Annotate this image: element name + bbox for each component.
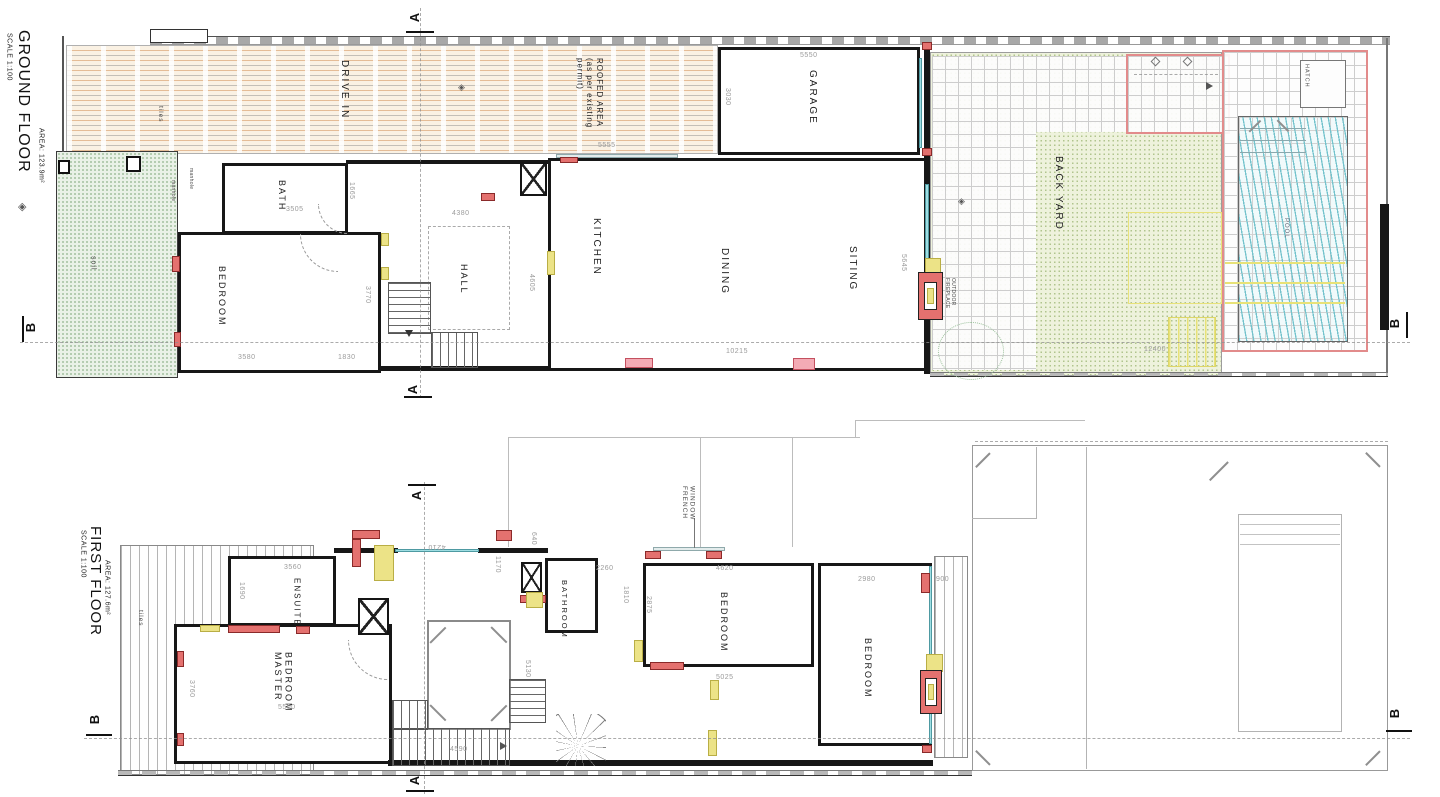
dim-bedroom2-span: 5025	[716, 674, 734, 681]
label-bedroom-mid: BEDROOM	[718, 592, 729, 653]
wall-patch-red	[481, 193, 495, 201]
label-kitchen: KITCHEN	[590, 218, 602, 276]
pool-roof-step	[1240, 544, 1340, 545]
fireplace-core	[927, 288, 934, 304]
label-drive-in: DRIVE IN	[338, 60, 350, 119]
room-bedroom-right	[818, 563, 932, 746]
dim-garage-width: 5550	[800, 52, 818, 59]
dim-bathroom-depth: 1810	[622, 586, 629, 604]
stair-side-ff	[509, 679, 546, 723]
label-garage: GARAGE	[806, 70, 818, 125]
gf-title: GROUND FLOOR	[14, 30, 33, 173]
front-boundary-wall	[150, 36, 1390, 45]
label-outdoor-fireplace: OUTDOOR FIREPLACE	[944, 278, 956, 309]
room-garage	[718, 47, 920, 155]
room-bathroom-ff	[545, 558, 598, 633]
north-diamond-icon: ◈	[18, 200, 26, 213]
stair-arrow-gf	[405, 330, 413, 337]
gate-box	[150, 29, 208, 43]
label-bedroom-gf: BEDROOM	[216, 266, 227, 327]
label-hatch: HATCH	[1303, 64, 1310, 88]
lintel-yellow	[200, 625, 220, 632]
dim-ensuite-width: 3560	[284, 564, 302, 571]
gf-area: AREA: 123.9m²	[36, 128, 44, 183]
roof-inner-line	[1086, 447, 1087, 769]
dim-garage-depth: 3030	[724, 88, 731, 106]
soil-manhole-box	[58, 160, 70, 174]
section-tick	[408, 484, 436, 486]
dim-landing-width: 4210	[428, 543, 446, 550]
wall-patch-red	[296, 626, 310, 634]
dim-bath-width: 3505	[286, 206, 304, 213]
section-tick	[404, 396, 432, 398]
room-living	[548, 158, 930, 371]
pool-steps	[1240, 152, 1306, 153]
lintel-yellow	[925, 258, 941, 273]
gf-scale: SCALE 1:100	[4, 33, 12, 81]
lift-shaft-ff	[358, 598, 389, 635]
hall-dashed-outline	[428, 226, 510, 330]
wall-patch-red	[560, 157, 578, 163]
wall-patch-red	[921, 573, 930, 593]
lintel-yellow	[526, 592, 543, 608]
french-window-leader	[694, 518, 695, 548]
dim-balcony-depth: 900	[936, 576, 949, 583]
section-tick	[86, 734, 112, 736]
yard-yellow-outline	[1128, 212, 1222, 304]
pool-roof-step	[1240, 534, 1340, 535]
party-wall-right	[1380, 204, 1389, 330]
label-bathroom-ff: BATHROOM	[560, 580, 569, 639]
section-marker-a: A	[407, 776, 422, 785]
dim-ensuite-depth: 1690	[238, 582, 245, 600]
pergola-deck	[1126, 54, 1230, 134]
lintel-yellow	[374, 545, 394, 581]
spiral-stair-circle	[556, 714, 606, 766]
label-pool: POOL	[1282, 218, 1289, 239]
roof-line	[855, 420, 856, 438]
section-marker-a: A	[405, 385, 420, 394]
ff-top-wall	[478, 548, 548, 553]
patio-tiles-left	[932, 56, 1036, 370]
stair-run2-ff	[392, 700, 428, 730]
wall-patch-pink	[625, 358, 653, 368]
label-roofed-area: ROOFED AREA (as per existing permit)	[575, 58, 604, 128]
stair-winder-gf	[431, 332, 478, 368]
roof-line	[855, 420, 1085, 421]
dim-master-depth: 3760	[188, 680, 195, 698]
lintel-yellow	[381, 233, 389, 246]
deck-arrow	[1206, 82, 1213, 90]
label-sitting: SITING	[846, 246, 858, 291]
dim-bath-depth: 1665	[348, 182, 355, 200]
wall-patch-red	[352, 530, 380, 539]
section-marker-a: A	[409, 491, 424, 500]
section-marker-b: B	[23, 323, 38, 332]
wall-patch-red	[706, 551, 722, 559]
wall-patch-pink	[793, 358, 815, 370]
pool-steps	[1240, 140, 1306, 141]
lintel-yellow	[708, 730, 717, 756]
pool-water	[1238, 116, 1348, 342]
section-tick	[1386, 730, 1412, 732]
yard-yellow-line	[1225, 262, 1345, 264]
soil-area	[56, 151, 178, 378]
rear-boundary-wall	[930, 372, 1388, 377]
wall-patch-red	[922, 148, 932, 156]
wall-patch-red	[174, 332, 181, 347]
soil-manhole-box	[126, 156, 141, 172]
dim-bedroom-width: 3580	[238, 354, 256, 361]
wall-patch-red	[172, 256, 180, 272]
wall-patch-red	[228, 625, 280, 633]
spiral-stair	[556, 714, 606, 766]
pool-roof-step	[1240, 524, 1340, 525]
patio-tiles-top	[1036, 56, 1128, 132]
tree-symbol	[938, 322, 1004, 380]
roof-line	[508, 437, 860, 438]
lintel-yellow	[634, 640, 643, 662]
lintel-yellow	[710, 680, 719, 700]
duct-shaft-ff	[521, 562, 542, 593]
roof-step-line	[1036, 447, 1037, 519]
dim-yard-width: 12400	[1144, 346, 1166, 353]
ff-area: AREA: 127.6m²	[102, 560, 110, 615]
label-manhole: manhole	[188, 168, 194, 189]
label-french-window: FRENCH WINDOW	[680, 486, 696, 521]
ff-bottom-boundary	[118, 770, 972, 776]
section-marker-b: B	[1387, 319, 1402, 328]
wall-patch-red	[922, 42, 932, 50]
lintel-yellow	[381, 267, 389, 280]
survey-diamond-icon: ◈	[458, 82, 465, 93]
roof-line	[792, 437, 793, 547]
dim-bathroom-width: 2260	[596, 565, 614, 572]
section-line-a-ff	[424, 482, 425, 794]
yard-yellow-line	[1225, 302, 1345, 304]
dim-living-width: 10215	[726, 348, 748, 355]
label-soil: soil	[88, 256, 96, 271]
wall-patch-red	[352, 539, 361, 567]
room-bedroom-gf	[178, 232, 381, 373]
stair-flight-gf	[388, 282, 431, 334]
section-line-a-gf	[420, 8, 421, 398]
survey-diamond-icon: ◈	[958, 196, 965, 207]
wall-patch-red	[496, 530, 512, 541]
label-bedroom-right: BEDROOM	[862, 638, 873, 699]
dim-landing-depth: 1170	[494, 556, 501, 573]
dim-master-width: 5500	[278, 704, 296, 711]
lift-shaft-gf	[520, 162, 547, 196]
section-tick	[1406, 312, 1408, 338]
pool-roof-outline	[1238, 514, 1342, 732]
section-tick	[22, 316, 24, 342]
stair-arrow-ff	[500, 742, 507, 750]
label-dining: DINING	[718, 248, 730, 295]
section-tick	[406, 31, 434, 33]
wall-patch-red	[650, 662, 684, 670]
wall-patch-red	[177, 733, 184, 746]
roof-line	[700, 437, 701, 547]
left-boundary-line	[62, 36, 64, 152]
wall-patch-red	[177, 651, 184, 667]
drive-in-paving	[66, 45, 718, 154]
section-tick	[406, 790, 434, 792]
dim-bedroom2-width: 4620	[716, 565, 734, 572]
ff-scale: SCALE 1:100	[78, 530, 86, 578]
section-marker-a: A	[407, 13, 422, 22]
label-ensuite: ENSUITE	[292, 578, 302, 627]
lintel-yellow	[547, 251, 555, 275]
dim-stair-depth: 5130	[524, 660, 531, 678]
dim-roofed-width: 5555	[598, 142, 616, 149]
dim-living-depth: 5645	[900, 254, 907, 272]
section-line-b-ff	[84, 738, 1410, 739]
dim-stair-run: 4590	[450, 746, 468, 753]
dim-bedroom2-depth: 2875	[645, 596, 652, 614]
wall-patch-red	[922, 745, 932, 753]
roof-step-line	[972, 518, 1036, 519]
label-tiles-ff: tiles	[136, 610, 144, 627]
section-line-b-gf	[20, 342, 1410, 343]
dim-hall-width: 4380	[452, 210, 470, 217]
label-manhole: manhole	[170, 180, 176, 201]
wall-patch-red	[645, 551, 661, 559]
yard-yellow-line	[1225, 282, 1345, 284]
dim-hall-depth: 4605	[528, 274, 535, 292]
section-marker-b: B	[1387, 709, 1402, 718]
label-hall: HALL	[458, 264, 469, 295]
balcony-fireplace-core	[928, 684, 934, 700]
window-garage-door	[919, 58, 922, 148]
label-tiles-gf: tiles	[156, 106, 164, 123]
floor-plan-canvas: ◈ ◈ GROUND FLOOR SCALE 1:100 AREA: 123.9…	[0, 0, 1440, 797]
pergola-beam	[1134, 74, 1218, 75]
label-back-yard: BACK YARD	[1052, 156, 1064, 231]
dim-bedroom3-width: 2980	[858, 576, 876, 583]
section-marker-b: B	[87, 715, 102, 724]
dim-bedroom-depth: 3770	[364, 286, 371, 304]
roof-top-dashline	[975, 441, 1388, 442]
dim-bedroom-pass: 1830	[338, 354, 356, 361]
dim-window: 640	[530, 532, 537, 545]
